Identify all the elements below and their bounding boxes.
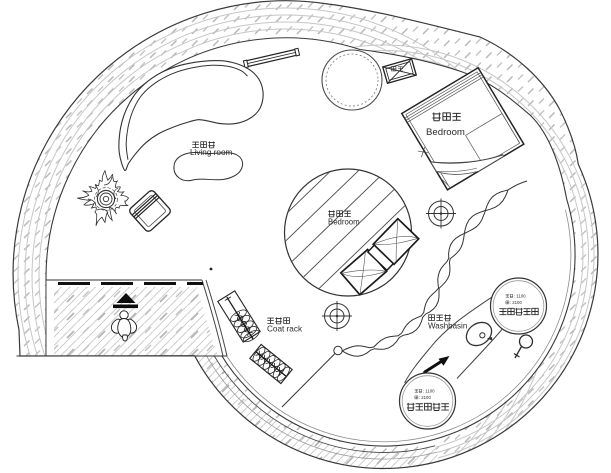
svg-text:: 1100: : 1100	[514, 294, 526, 299]
svg-text:Bedroom: Bedroom	[426, 127, 465, 138]
svg-text:Bedroom: Bedroom	[328, 218, 360, 227]
svg-text:: 2100: : 2100	[510, 300, 523, 305]
svg-text:: 1100: : 1100	[423, 389, 435, 394]
svg-text:Washbasin: Washbasin	[428, 322, 467, 331]
svg-text:Coat rack: Coat rack	[267, 325, 303, 334]
svg-text:: 2100: : 2100	[419, 395, 432, 400]
svg-text:Living room: Living room	[190, 148, 233, 157]
